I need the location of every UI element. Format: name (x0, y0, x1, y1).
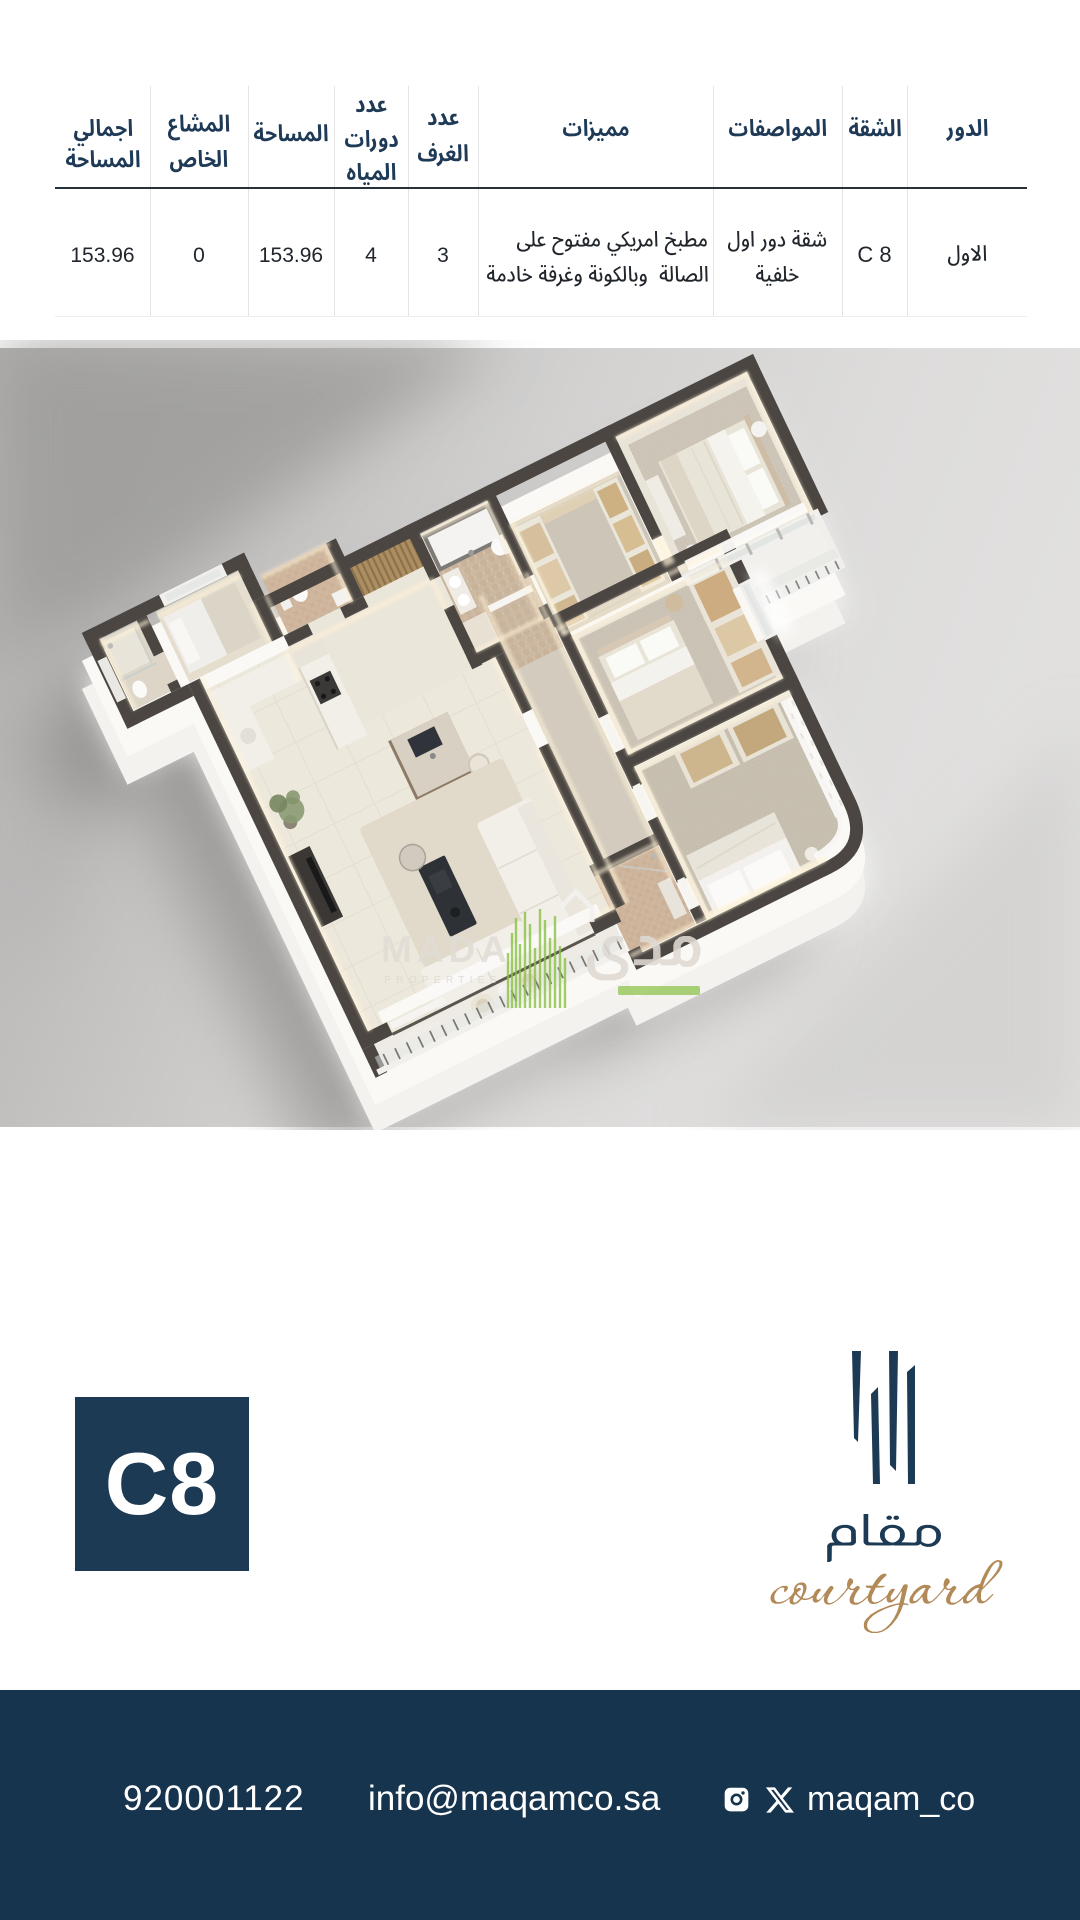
svg-text:MADA: MADA (381, 929, 512, 970)
svg-text:PROPERTIES: PROPERTIES (384, 974, 502, 986)
